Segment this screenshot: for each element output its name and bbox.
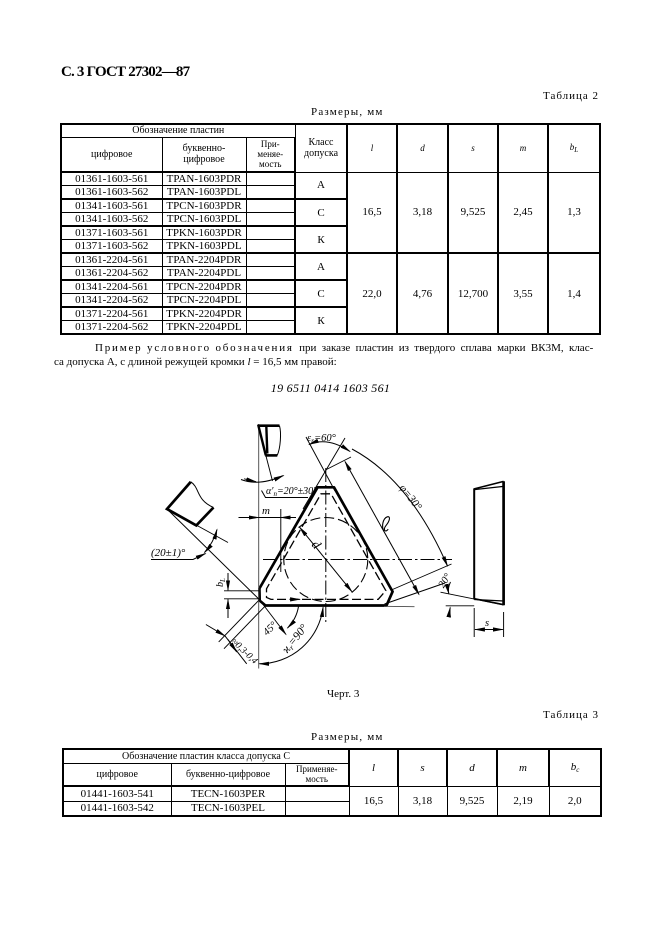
svg-text:ϰr=90°: ϰr=90° <box>280 622 311 656</box>
svg-text:bL: bL <box>215 578 227 587</box>
svg-text:φ=30°: φ=30° <box>397 482 425 513</box>
svg-text:εr=60°: εr=60° <box>307 433 337 445</box>
svg-text:d: d <box>309 537 325 552</box>
svg-text:45°: 45° <box>261 619 280 638</box>
svg-text:m: m <box>262 505 270 517</box>
svg-text:α′n=20°±30′: α′n=20°±30′ <box>266 486 316 498</box>
svg-text:20°: 20° <box>437 571 455 590</box>
svg-text:(20±1)°: (20±1)° <box>151 547 186 559</box>
svg-text:s: s <box>485 618 489 629</box>
svg-text:≈0,3-0,4: ≈0,3-0,4 <box>229 637 259 667</box>
